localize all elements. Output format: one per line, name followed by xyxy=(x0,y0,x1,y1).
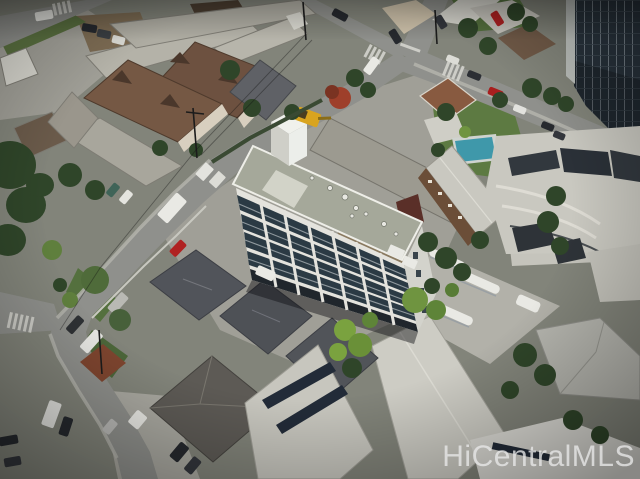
vignette-overlay xyxy=(0,0,640,479)
aerial-photo: HiCentralMLS xyxy=(0,0,640,479)
top-shade xyxy=(0,0,640,40)
aerial-scene xyxy=(0,0,640,479)
